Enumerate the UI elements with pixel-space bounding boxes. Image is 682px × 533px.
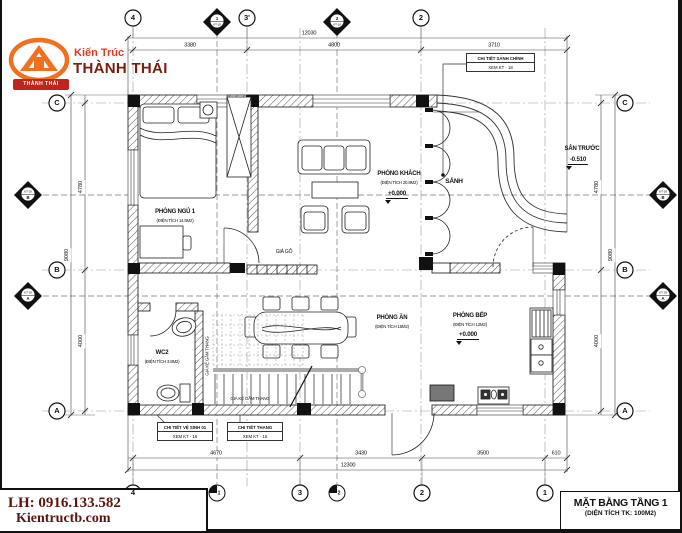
- callout-main-hall: CHI TIẾT SẢNH CHÍNH XEM KT - 18: [466, 53, 535, 72]
- label-wc-area: (ĐIỆN TÍCH 3.8M2): [145, 359, 180, 364]
- label-yard-level: -0.510: [568, 156, 588, 165]
- axis-top-3p: 3': [238, 9, 256, 27]
- wardrobe: [227, 97, 251, 177]
- label-stair-shelf-vertical: GIÁ KỆ GẦM THANG: [205, 336, 210, 375]
- dim-left-seg: 4000: [79, 334, 85, 348]
- callout-ref: XEM KT - 16: [158, 432, 212, 440]
- stove: [478, 387, 509, 404]
- brand-name: THÀNH THÁI: [73, 60, 168, 77]
- axis-top-4: 4: [124, 9, 142, 27]
- callout-title: CHI TIẾT VỆ SINH 01: [158, 423, 212, 432]
- contact-phone: LH: 0916.133.582: [8, 495, 121, 512]
- level-symbol: [456, 341, 462, 345]
- callout-title: CHI TIẾT THANG: [228, 423, 282, 432]
- label-kitchen-level: +0.000: [457, 331, 479, 340]
- label-living-level: +0.000: [386, 190, 408, 199]
- label-hall: SẢNH: [445, 178, 463, 185]
- label-bedroom: PHÒNG NGỦ 1: [155, 209, 195, 216]
- dim-bottom-total: 12300: [340, 463, 357, 469]
- label-dining-area: (ĐIỆN TÍCH 15M2): [375, 324, 409, 329]
- section-A-right-label: A: [661, 297, 664, 301]
- axis-right-B: B: [616, 261, 634, 279]
- section-B-right-ref: KT-18: [659, 190, 667, 193]
- axis-right-A: A: [616, 402, 634, 420]
- dim-top-seg: 3710: [487, 43, 501, 49]
- dim-left-seg: 4780: [79, 180, 85, 194]
- section-cut-1-bottom: 1: [218, 492, 221, 497]
- label-kitchen-area: (ĐIỆN TÍCH 12M2): [453, 322, 487, 327]
- callout-ref: XEM KT - 15: [228, 432, 282, 440]
- dim-bottom-seg: 610: [551, 451, 562, 457]
- axis-left-C: C: [48, 94, 66, 112]
- axis-bottom-4: 4: [124, 484, 142, 502]
- axis-bottom-3: 3: [291, 484, 309, 502]
- frame-left: [0, 0, 2, 533]
- brand-tagline: Kiến Trúc: [74, 47, 124, 59]
- dim-right-seg: 4000: [595, 334, 601, 348]
- label-wood-shelf: GIÁ GỖ: [276, 250, 293, 256]
- level-symbol: [566, 166, 572, 170]
- floor-plan-canvas: [0, 0, 682, 533]
- label-stair-shelf: GIÁ KỆ GẦM THANG: [230, 396, 269, 401]
- label-kitchen: PHÒNG BẾP: [453, 313, 487, 320]
- section-cut-2-bottom: 2: [338, 492, 341, 497]
- label-wc: WC2: [156, 350, 169, 357]
- floor-plan-sheet: Kiến Trúc THÀNH THÁI THÀNH THÁI LH: 0916…: [0, 0, 682, 533]
- axis-right-C: C: [616, 94, 634, 112]
- dim-bottom-seg: 3430: [354, 451, 368, 457]
- drawing-subtitle: (DIỆN TÍCH TK: 100M2): [561, 510, 680, 517]
- contact-box: LH: 0916.133.582 Kientructb.com: [0, 488, 208, 531]
- dim-top-seg: 4800: [327, 43, 341, 49]
- desk: [140, 226, 191, 258]
- callout-wc-detail: CHI TIẾT VỆ SINH 01 XEM KT - 16: [157, 422, 213, 441]
- dim-left-total: 9080: [65, 248, 71, 262]
- dim-top-seg: 3380: [183, 43, 197, 49]
- callout-ref: XEM KT - 18: [467, 63, 534, 71]
- label-living: PHÒNG KHÁCH: [377, 171, 420, 178]
- axis-bottom-1: 1: [536, 484, 554, 502]
- axis-top-2: 2: [412, 9, 430, 27]
- callout-title: CHI TIẾT SẢNH CHÍNH: [467, 54, 534, 63]
- kitchen-cabinet: [430, 385, 454, 401]
- nightstand: [200, 102, 217, 118]
- frame-right: [678, 0, 682, 533]
- dim-right-seg: 4780: [595, 180, 601, 194]
- axis-left-A: A: [48, 402, 66, 420]
- label-dining: PHÒNG ĂN: [377, 315, 408, 322]
- callout-stair-detail: CHI TIẾT THANG XEM KT - 15: [227, 422, 283, 441]
- section-A-right-ref: KT-18: [659, 291, 667, 294]
- dim-bottom-seg: 3500: [476, 451, 490, 457]
- brand-logo-icon: [11, 40, 67, 80]
- axis-left-B: B: [48, 261, 66, 279]
- section-B-right-label: B: [661, 196, 664, 200]
- section-1-ref: KT-18: [213, 23, 221, 26]
- dining-table: [245, 297, 356, 358]
- axis-bottom-2: 2: [413, 484, 431, 502]
- section-1-label: 1: [216, 16, 218, 20]
- label-bedroom-area: (ĐIỆN TÍCH 14.5M2): [156, 218, 193, 223]
- section-2-label: 2: [336, 16, 338, 20]
- dim-top-total: 12030: [301, 31, 318, 37]
- section-A-left-label: A: [26, 297, 29, 301]
- section-A-left-ref: KT-18: [24, 291, 32, 294]
- label-yard: SÂN TRƯỚC: [565, 146, 600, 153]
- kitchen-counter: [530, 308, 553, 374]
- dim-bottom-seg: 4670: [209, 451, 223, 457]
- section-markers: [14, 8, 677, 501]
- brand-badge: THÀNH THÁI: [13, 79, 69, 90]
- dim-right-total: 9080: [609, 248, 615, 262]
- entrance-curved-steps: [433, 95, 567, 232]
- label-living-area: (ĐIỆN TÍCH 20.8M2): [380, 180, 417, 185]
- section-B-left-ref: KT-18: [24, 190, 32, 193]
- section-B-left-label: B: [26, 196, 29, 200]
- sofa-set: [298, 140, 370, 233]
- level-symbol: [385, 200, 391, 204]
- title-block: MẶT BẰNG TẦNG 1 (DIỆN TÍCH TK: 100M2): [560, 491, 681, 530]
- section-2-ref: KT-18: [333, 23, 341, 26]
- drawing-title: MẶT BẰNG TẦNG 1: [561, 497, 680, 509]
- contact-website[interactable]: Kientructb.com: [16, 511, 110, 527]
